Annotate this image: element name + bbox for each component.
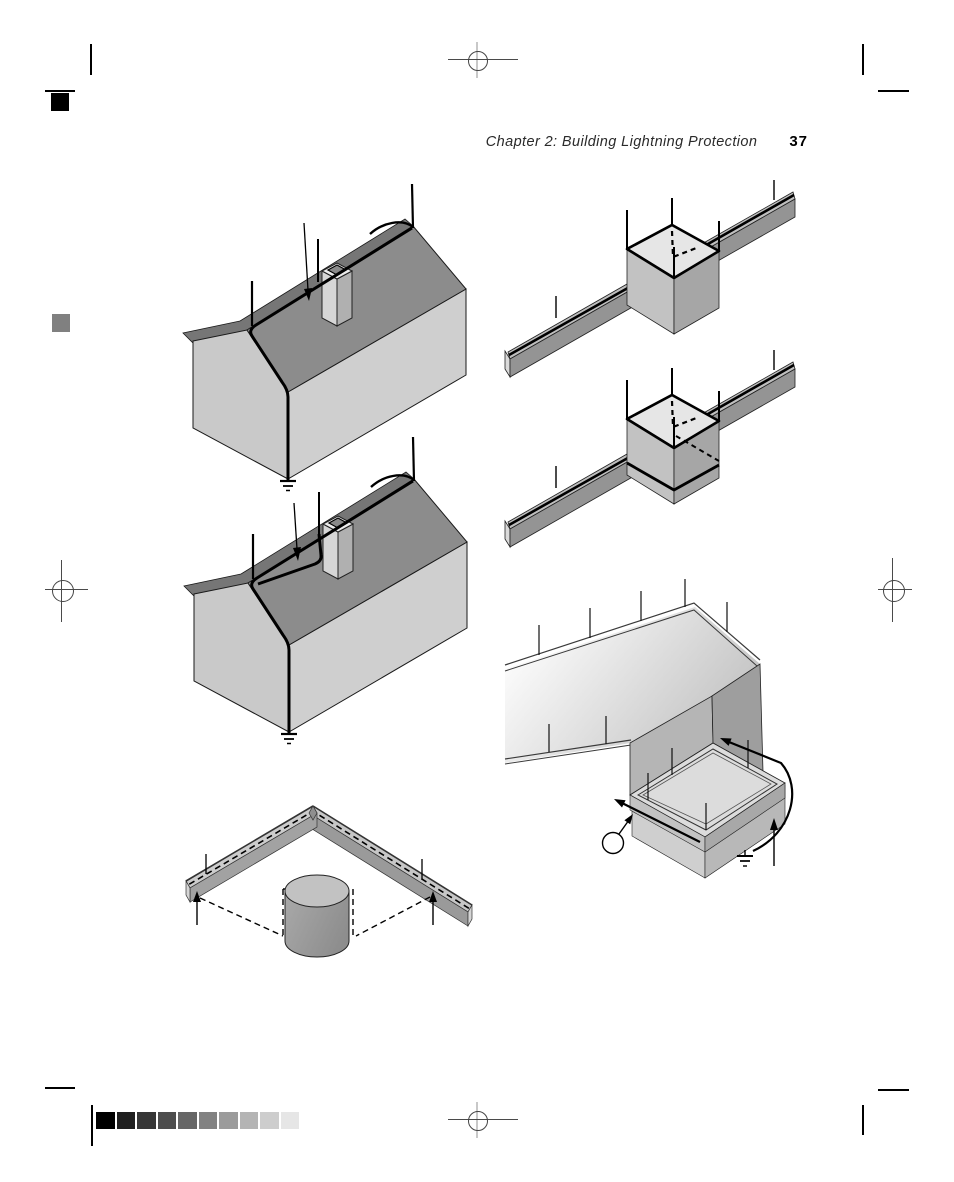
chapter-heading: Chapter 2: Building Lightning Protection — [486, 134, 758, 150]
crop-mark-top-left-horizontal — [45, 90, 75, 92]
calibration-swatch — [199, 1112, 218, 1129]
calibration-swatch — [240, 1112, 259, 1129]
zone-dashed-diagonal — [200, 898, 283, 936]
dashed-parapet-conductor — [188, 810, 315, 885]
black-registration-square — [51, 93, 69, 111]
calibration-swatch — [96, 1112, 115, 1129]
chimney-side — [337, 271, 352, 326]
calibration-swatch — [219, 1112, 238, 1129]
crop-mark-bottom-left-horizontal — [45, 1087, 75, 1089]
crop-mark-bottom-right-horizontal — [878, 1089, 909, 1091]
calibration-swatch — [260, 1112, 279, 1129]
calibration-swatch — [281, 1112, 300, 1129]
page-number: 37 — [789, 133, 808, 150]
air-terminal-rod — [412, 184, 413, 228]
conductor-arrowhead — [614, 799, 626, 808]
gray-registration-square — [52, 314, 70, 332]
printed-page: Chapter 2: Building Lightning Protection… — [0, 0, 954, 1182]
cylinder-top — [285, 875, 349, 907]
figure-two-level-roof-corner — [505, 573, 835, 888]
figure-house-roof-conductor-chimney-loop — [185, 431, 485, 753]
figure-parapet-corner-cylinder — [175, 795, 495, 995]
crop-mark-top-right-horizontal — [878, 90, 909, 92]
figure-parapet-box-base-loop — [505, 348, 795, 553]
crop-mark-bottom-right-vertical — [862, 1105, 864, 1135]
crop-mark-bottom-left-vertical — [91, 1105, 93, 1146]
page-header: Chapter 2: Building Lightning Protection… — [0, 133, 808, 151]
calibration-swatch — [117, 1112, 136, 1129]
calibration-swatches — [96, 1112, 299, 1129]
callout-circle — [603, 833, 624, 854]
air-terminal-rod — [413, 437, 414, 481]
crop-mark-top-right-vertical — [862, 44, 864, 75]
zone-dashed-diagonal — [356, 897, 430, 936]
parapet-outer-edge — [186, 806, 313, 881]
ground-symbol — [281, 734, 297, 744]
calibration-swatch — [158, 1112, 177, 1129]
calibration-swatch — [178, 1112, 197, 1129]
chimney-side — [338, 524, 353, 579]
crop-mark-top-left-vertical — [90, 44, 92, 75]
calibration-swatch — [137, 1112, 156, 1129]
